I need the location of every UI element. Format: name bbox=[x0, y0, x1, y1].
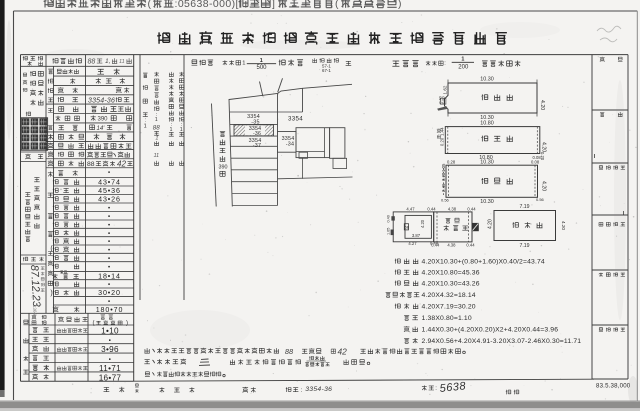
svg-text:3.20: 3.20 bbox=[441, 172, 446, 181]
svg-text:0.28: 0.28 bbox=[447, 159, 456, 164]
svg-text:390: 390 bbox=[219, 164, 228, 170]
svg-text:•: • bbox=[109, 339, 111, 345]
svg-text:(: ( bbox=[93, 321, 95, 327]
svg-text:4.20: 4.20 bbox=[541, 142, 547, 152]
svg-text:4.47: 4.47 bbox=[406, 206, 415, 211]
svg-text:180•70: 180•70 bbox=[96, 306, 124, 314]
svg-text:3354: 3354 bbox=[288, 115, 303, 122]
svg-text:•: • bbox=[108, 206, 111, 212]
svg-text:1: 1 bbox=[461, 57, 464, 63]
svg-text:-36: -36 bbox=[253, 131, 261, 137]
svg-text:•: • bbox=[108, 256, 111, 262]
svg-text:88: 88 bbox=[285, 347, 294, 356]
svg-text:1.44X0.30+(4.20X0.20)X2+4.20X0: 1.44X0.30+(4.20X0.20)X2+4.20X0.44=3.96 bbox=[422, 327, 559, 334]
svg-text:4.20X4.32=18.14: 4.20X4.32=18.14 bbox=[422, 292, 476, 299]
svg-text:0.44: 0.44 bbox=[427, 206, 436, 211]
svg-text:]: ] bbox=[272, 0, 275, 10]
svg-text:3.87: 3.87 bbox=[412, 233, 421, 238]
svg-text:10.30: 10.30 bbox=[480, 159, 494, 165]
svg-text:): ) bbox=[126, 321, 128, 327]
svg-text:-34: -34 bbox=[286, 142, 294, 148]
svg-text:7.19: 7.19 bbox=[519, 243, 529, 249]
svg-text:-35: -35 bbox=[251, 120, 259, 126]
svg-text:45•36: 45•36 bbox=[98, 187, 121, 195]
svg-text:83.5.38,000: 83.5.38,000 bbox=[596, 382, 631, 389]
svg-text:•: • bbox=[108, 215, 111, 221]
svg-text:•: • bbox=[109, 358, 111, 364]
svg-text:•: • bbox=[108, 223, 111, 229]
svg-text:1: 1 bbox=[144, 124, 147, 130]
svg-text:•: • bbox=[108, 231, 111, 237]
svg-text:7.19: 7.19 bbox=[519, 204, 529, 210]
svg-text:4.38: 4.38 bbox=[447, 242, 456, 247]
svg-text:(: ( bbox=[148, 0, 152, 10]
svg-text:0.44: 0.44 bbox=[466, 242, 475, 247]
svg-text:1.38X0.80=1.10: 1.38X0.80=1.10 bbox=[422, 315, 472, 322]
svg-text:•: • bbox=[108, 240, 111, 246]
svg-text:0.56: 0.56 bbox=[536, 197, 545, 202]
svg-text:4.20: 4.20 bbox=[539, 100, 545, 110]
svg-text:•: • bbox=[108, 248, 111, 254]
svg-text:390: 390 bbox=[98, 117, 109, 123]
svg-text:88: 88 bbox=[87, 161, 95, 168]
svg-text:3354-36: 3354-36 bbox=[88, 97, 115, 104]
svg-text:14': 14' bbox=[97, 126, 106, 132]
svg-text:4.20X7.19=30.20: 4.20X7.19=30.20 bbox=[422, 304, 476, 311]
svg-text:4.38: 4.38 bbox=[448, 207, 457, 212]
svg-text:0.44: 0.44 bbox=[431, 242, 440, 247]
svg-text:0.20: 0.20 bbox=[540, 152, 545, 161]
svg-text:11•71: 11•71 bbox=[99, 364, 121, 373]
svg-text:1.05: 1.05 bbox=[386, 228, 390, 235]
svg-text:10.30: 10.30 bbox=[480, 77, 494, 83]
svg-text:43•74: 43•74 bbox=[98, 179, 121, 187]
svg-text:1: 1 bbox=[260, 58, 263, 64]
svg-text:2.94X0.56+4.20X4.91-3.20X3.07-: 2.94X0.56+4.20X4.91-3.20X3.07-2.46X0.30=… bbox=[422, 338, 582, 345]
svg-text:1: 1 bbox=[155, 136, 158, 142]
svg-text:•: • bbox=[108, 283, 111, 289]
svg-text:0.08: 0.08 bbox=[531, 159, 540, 164]
svg-text:11: 11 bbox=[119, 59, 125, 65]
svg-text:5B: 5B bbox=[405, 226, 410, 230]
svg-text:1: 1 bbox=[155, 117, 158, 123]
svg-text:4.27: 4.27 bbox=[408, 241, 417, 246]
svg-text:1•10: 1•10 bbox=[101, 326, 119, 335]
svg-text:(: ( bbox=[335, 0, 339, 10]
svg-text:1: 1 bbox=[242, 60, 245, 66]
svg-text:43•26: 43•26 bbox=[98, 196, 121, 204]
svg-text:•: • bbox=[108, 300, 111, 306]
svg-text:0.80: 0.80 bbox=[442, 96, 446, 103]
svg-text:500: 500 bbox=[256, 65, 267, 71]
svg-text:3•96: 3•96 bbox=[101, 345, 119, 354]
svg-text:11: 11 bbox=[154, 153, 159, 159]
svg-text:88: 88 bbox=[153, 125, 161, 132]
svg-text:87.12.23: 87.12.23 bbox=[28, 265, 42, 308]
svg-text:42: 42 bbox=[338, 347, 348, 357]
svg-text:•: • bbox=[108, 171, 110, 177]
svg-text:1364: 1364 bbox=[32, 305, 38, 316]
svg-text:-37: -37 bbox=[253, 143, 261, 149]
svg-text:4.20X10.80=45.36: 4.20X10.80=45.36 bbox=[422, 270, 480, 277]
svg-text:10.80: 10.80 bbox=[480, 120, 494, 126]
svg-text:4.20X10.30=43.26: 4.20X10.30=43.26 bbox=[422, 281, 480, 288]
svg-text:30•20: 30•20 bbox=[98, 289, 121, 297]
svg-text:18•14: 18•14 bbox=[98, 272, 121, 280]
svg-text:0.20: 0.20 bbox=[439, 137, 444, 146]
svg-text:0.56: 0.56 bbox=[441, 198, 450, 203]
svg-text:): ) bbox=[398, 0, 402, 10]
svg-text:4.20: 4.20 bbox=[561, 221, 566, 230]
svg-text:42: 42 bbox=[117, 159, 126, 168]
svg-text:4.20X10.30+(0.80+1.60)X0.40/2=: 4.20X10.30+(0.80+1.60)X0.40/2=43.74 bbox=[422, 259, 545, 266]
svg-text:0.44: 0.44 bbox=[467, 207, 476, 212]
svg-text:2.46: 2.46 bbox=[441, 183, 446, 192]
svg-text:1: 1 bbox=[170, 127, 173, 133]
svg-text:3354-36: 3354-36 bbox=[305, 386, 332, 393]
svg-text:16•77: 16•77 bbox=[99, 373, 122, 382]
svg-text:0.40: 0.40 bbox=[386, 215, 390, 222]
svg-text:•: • bbox=[108, 265, 111, 271]
svg-text:1.62: 1.62 bbox=[442, 85, 447, 94]
svg-text::05638-000)[: :05638-000)[ bbox=[175, 0, 239, 10]
svg-text:): ) bbox=[50, 290, 52, 297]
svg-text:4.20: 4.20 bbox=[540, 181, 546, 191]
svg-text:200: 200 bbox=[458, 65, 469, 71]
svg-text:1.05: 1.05 bbox=[441, 163, 446, 172]
svg-text:67-1: 67-1 bbox=[322, 68, 331, 73]
svg-text:4.20: 4.20 bbox=[420, 219, 425, 228]
svg-text:1: 1 bbox=[180, 127, 183, 133]
svg-text:10.30: 10.30 bbox=[480, 199, 494, 205]
